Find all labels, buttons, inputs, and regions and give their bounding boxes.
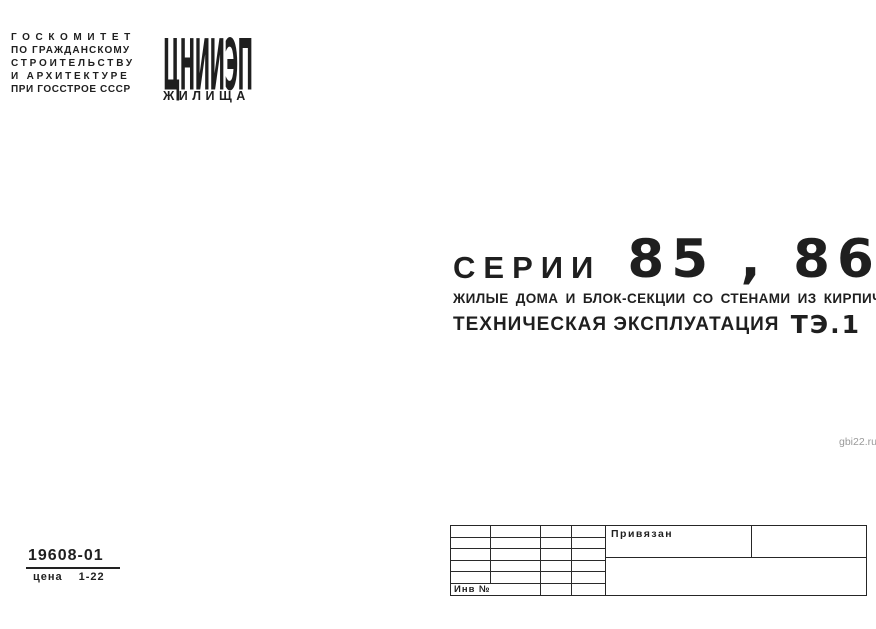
inventory-number-cell: Инв № — [451, 584, 541, 596]
document-cover-page: ГОСКОМИТЕТ ПО ГРАЖДАНСКОМУ СТРОИТЕЛЬСТВУ… — [0, 0, 876, 629]
stamp-right-section: Привязан — [606, 526, 866, 595]
organization-line: И АРХИТЕКТУРЕ — [11, 70, 139, 83]
stamp-cell — [572, 561, 605, 573]
price-label: цена — [33, 571, 63, 583]
stamp-cell — [541, 561, 572, 573]
doc-type-row: ТЕХНИЧЕСКАЯ ЭКСПЛУАТАЦИЯ ТЭ.1 — [453, 310, 861, 339]
stamp-cell — [451, 526, 491, 538]
stamp-grid: Инв № — [451, 526, 606, 595]
organization-block: ГОСКОМИТЕТ ПО ГРАЖДАНСКОМУ СТРОИТЕЛЬСТВУ… — [11, 31, 139, 96]
stamp-cell — [491, 561, 541, 573]
stamp-cell — [451, 572, 491, 584]
stamp-cell — [541, 549, 572, 561]
stamp-cell — [541, 584, 572, 596]
organization-line: ГОСКОМИТЕТ — [11, 31, 139, 44]
stamp-cell — [572, 526, 605, 538]
stamp-cell — [541, 526, 572, 538]
price-value: 1-22 — [79, 571, 105, 583]
site-watermark: gbi22.ru — [839, 436, 876, 448]
stamp-cell — [572, 549, 605, 561]
doc-type-label: ТЕХНИЧЕСКАЯ ЭКСПЛУАТАЦИЯ — [453, 314, 779, 336]
catalog-number: 19608-01 — [26, 547, 120, 569]
stamp-cell — [572, 584, 605, 596]
stamp-cell — [572, 572, 605, 584]
stamp-cell — [541, 572, 572, 584]
price-row: цена 1-22 — [26, 571, 120, 583]
organization-line: ПО ГРАЖДАНСКОМУ — [11, 44, 139, 57]
catalog-block: 19608-01 цена 1-22 — [26, 547, 120, 583]
series-label: СЕРИИ — [453, 252, 601, 283]
binding-label: Привязан — [611, 528, 673, 540]
stamp-cell — [451, 538, 491, 550]
stamp-cell — [491, 549, 541, 561]
stamp-cell — [491, 538, 541, 550]
document-subtitle: ЖИЛЫЕ ДОМА И БЛОК-СЕКЦИИ СО СТЕНАМИ ИЗ К… — [453, 291, 863, 306]
stamp-cell — [572, 538, 605, 550]
stamp-cell — [491, 526, 541, 538]
series-title: СЕРИИ 85 , 86 — [453, 233, 876, 286]
doc-code: ТЭ.1 — [791, 310, 861, 339]
stamp-cell — [541, 538, 572, 550]
logo-subtitle: ЖИЛИЩА — [163, 89, 250, 103]
stamp-corner-cell — [751, 526, 866, 557]
series-numbers: 85 , 86 — [627, 233, 876, 286]
organization-line: ПРИ ГОССТРОЕ СССР — [11, 83, 139, 96]
stamp-cell — [451, 549, 491, 561]
title-block-stamp: Инв № Привязан — [450, 525, 867, 596]
organization-line: СТРОИТЕЛЬСТВУ — [11, 57, 139, 70]
stamp-cell — [451, 561, 491, 573]
binding-cell: Привязан — [606, 526, 866, 558]
stamp-cell — [491, 572, 541, 584]
